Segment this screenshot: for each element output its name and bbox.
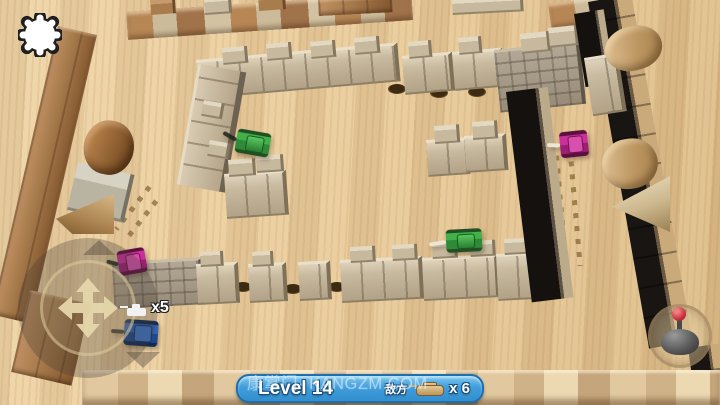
inner-bottom-seg-5 xyxy=(422,254,500,301)
inner-left-cren-1 xyxy=(228,158,256,177)
inner-top-cren-2 xyxy=(266,42,292,61)
inner-top-cren-3 xyxy=(310,40,336,59)
inner-bottom-seg-1 xyxy=(196,262,240,305)
inner-left-cren-a xyxy=(201,100,224,119)
brick-stack-cren-2 xyxy=(548,25,579,48)
watermark-text: 康掌门· KANGZM.COM xyxy=(247,370,428,394)
fire-joystick-ball xyxy=(672,307,686,321)
inner-left-block xyxy=(224,170,289,219)
tank-turret xyxy=(245,135,265,154)
bottom-cren-7 xyxy=(252,251,274,267)
top-border-cren-1 xyxy=(150,0,176,15)
enemy-tank-green-2 xyxy=(445,228,482,253)
inner-top-cren-5 xyxy=(408,40,432,59)
enemy-count-label: x 6 xyxy=(449,380,470,397)
move-arrows-icon xyxy=(56,276,120,340)
top-edge-block-2 xyxy=(452,0,524,15)
bottom-cren-6 xyxy=(200,251,224,267)
fire-button[interactable] xyxy=(648,304,712,368)
inner-top-cren-1 xyxy=(222,46,248,65)
gear-icon xyxy=(18,13,62,57)
inner-top-cren-4 xyxy=(354,36,380,55)
inner-left-cren-2 xyxy=(256,154,284,173)
floor-hole-1 xyxy=(388,84,406,94)
top-border-cren-3 xyxy=(258,0,286,11)
inner-top-cren-6 xyxy=(458,36,482,55)
inner-bottom-seg-2 xyxy=(248,262,288,303)
bottom-cren-2 xyxy=(392,244,418,261)
game-screen: x5 Level 14 敌方 x 6 康掌门· KANGZM.COM xyxy=(0,0,720,405)
bottom-cren-1 xyxy=(350,246,376,263)
mid-cross-cren-2 xyxy=(472,120,498,140)
tank-turret xyxy=(456,233,475,249)
mid-cross-cren-1 xyxy=(434,124,460,144)
enemy-tank-green-1 xyxy=(234,128,272,158)
tank-barrel xyxy=(547,143,560,147)
lives-indicator: x5 xyxy=(127,299,169,317)
player-tank-icon xyxy=(127,308,146,316)
inner-left-cren-b xyxy=(207,140,230,159)
enemy-tank-purple-1 xyxy=(559,130,590,159)
fire-joystick-base xyxy=(661,329,699,355)
lives-count: x5 xyxy=(151,299,169,317)
tank-turret xyxy=(568,135,585,154)
top-border-cren-2 xyxy=(204,0,232,15)
settings-button[interactable] xyxy=(18,13,62,57)
inner-bottom-seg-3 xyxy=(298,260,332,301)
brick-stack-cren-1 xyxy=(520,31,551,54)
